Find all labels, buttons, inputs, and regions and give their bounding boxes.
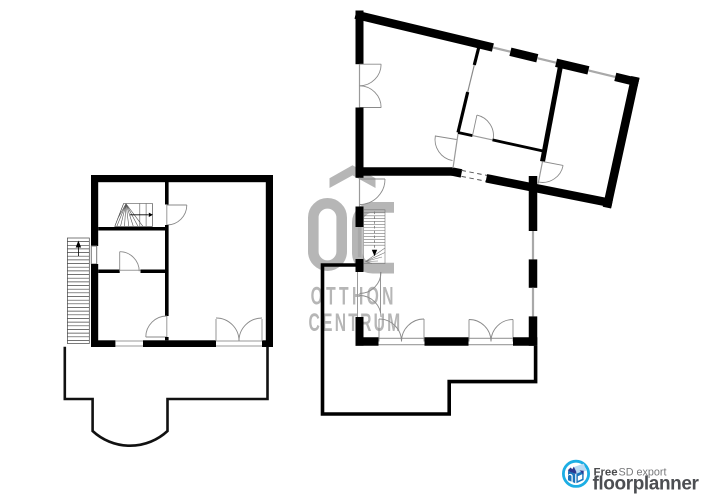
svg-text:floorplanner: floorplanner (593, 474, 700, 495)
